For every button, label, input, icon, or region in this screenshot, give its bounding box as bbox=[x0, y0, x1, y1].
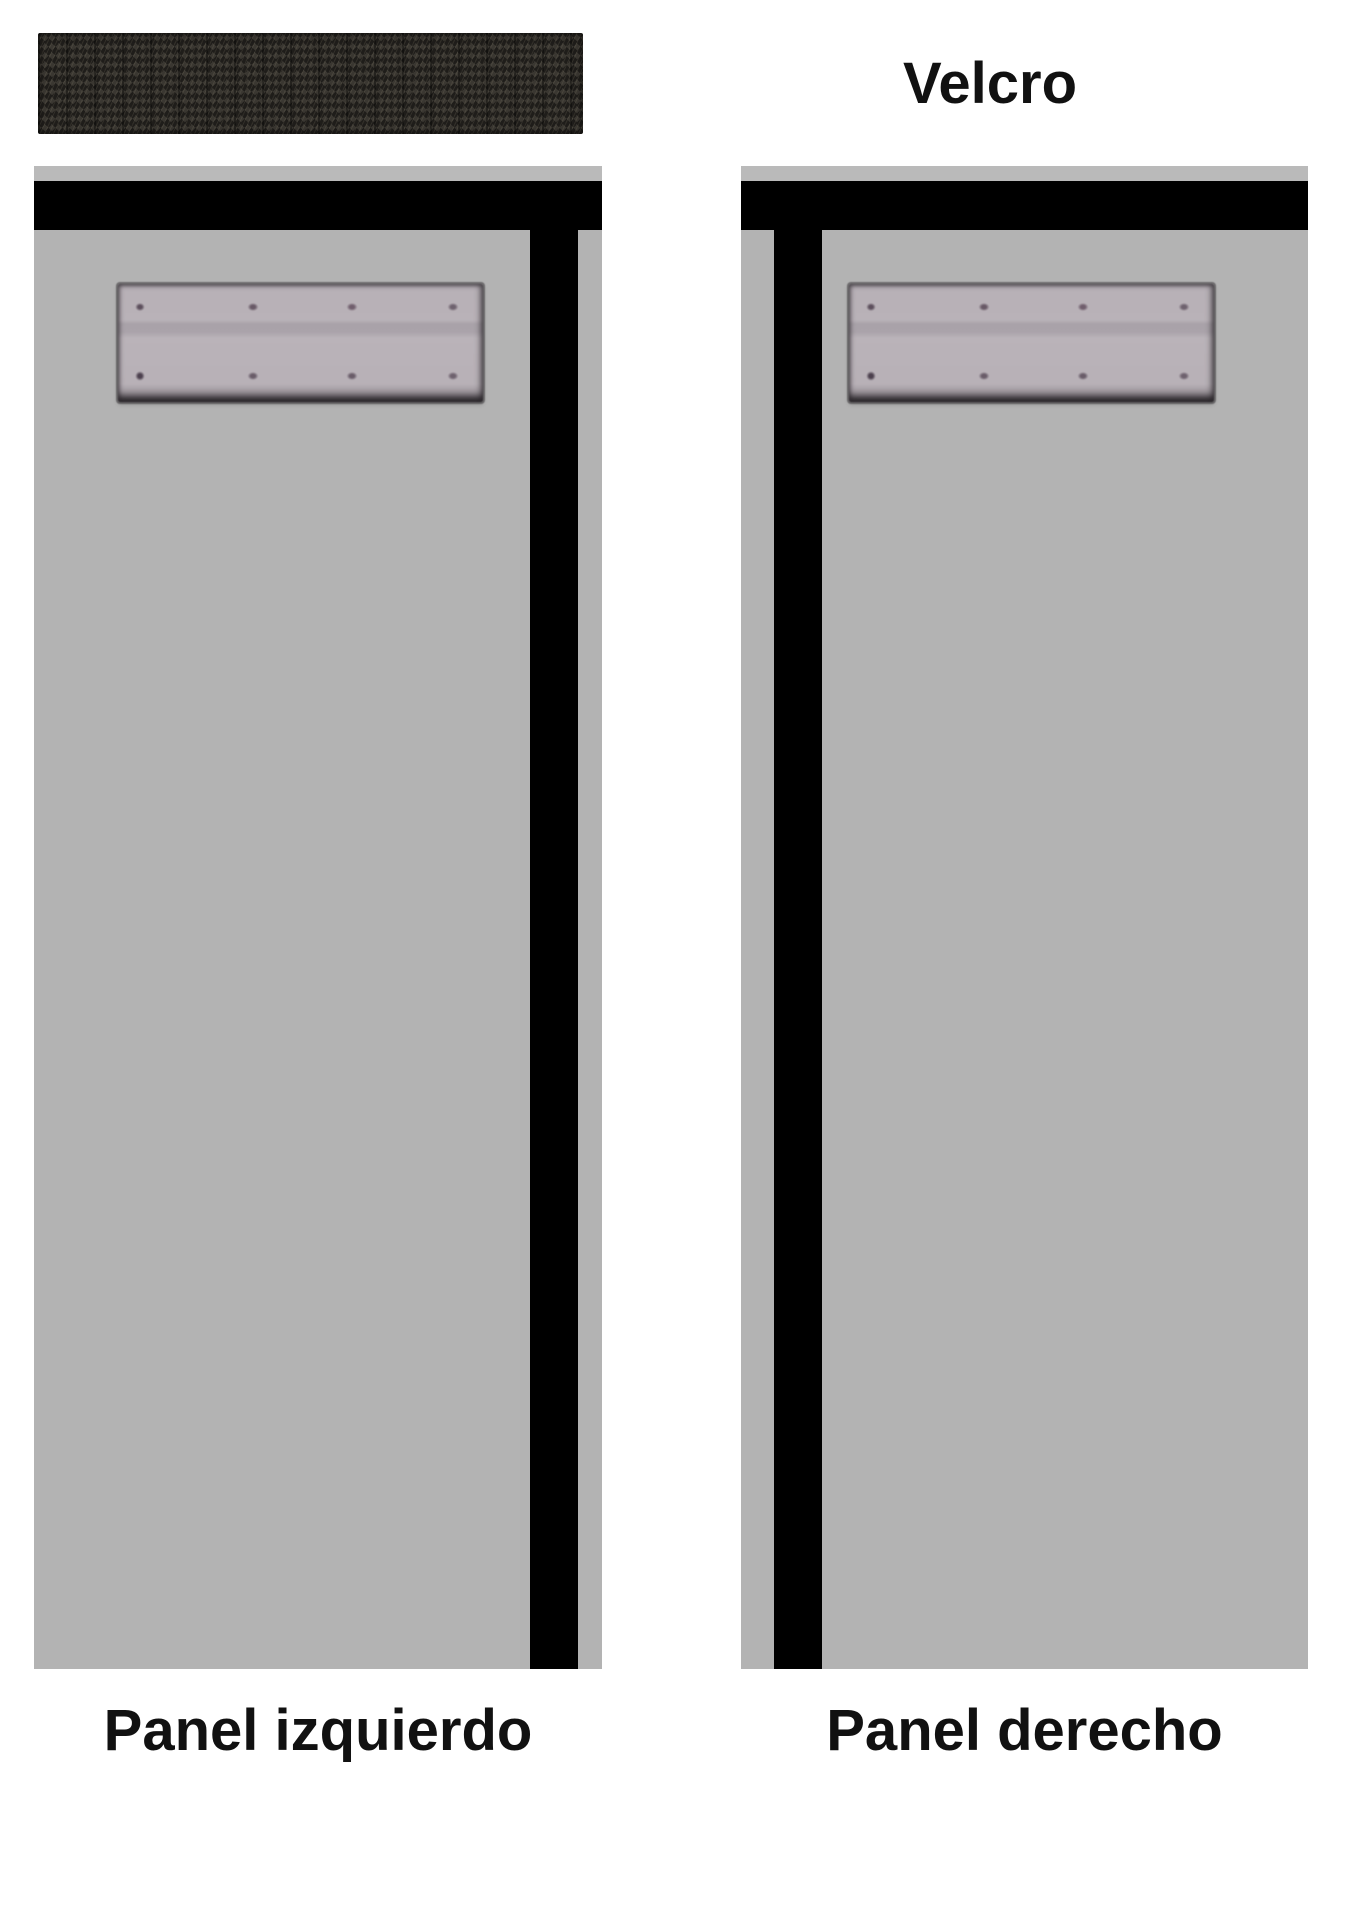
left-panel-top-strip bbox=[34, 166, 602, 181]
right-panel-top-strip bbox=[741, 166, 1308, 181]
right-panel-hinge-plate bbox=[849, 284, 1214, 402]
left-panel-hinge-plate bbox=[118, 284, 483, 402]
right-panel-vertical-black-stripe bbox=[774, 230, 822, 1669]
right-panel-top-black-bar bbox=[741, 181, 1308, 230]
right-panel bbox=[741, 166, 1308, 1669]
diagram-canvas: Velcro Panel izquierdo Panel derecho bbox=[0, 0, 1357, 1920]
velcro-label: Velcro bbox=[679, 55, 1301, 113]
left-panel-vertical-black-stripe bbox=[530, 230, 578, 1669]
left-panel-top-black-bar bbox=[34, 181, 602, 230]
left-panel-label: Panel izquierdo bbox=[34, 1702, 602, 1760]
velcro-strip-image bbox=[38, 33, 583, 134]
right-panel-label: Panel derecho bbox=[741, 1702, 1308, 1760]
left-panel bbox=[34, 166, 602, 1669]
